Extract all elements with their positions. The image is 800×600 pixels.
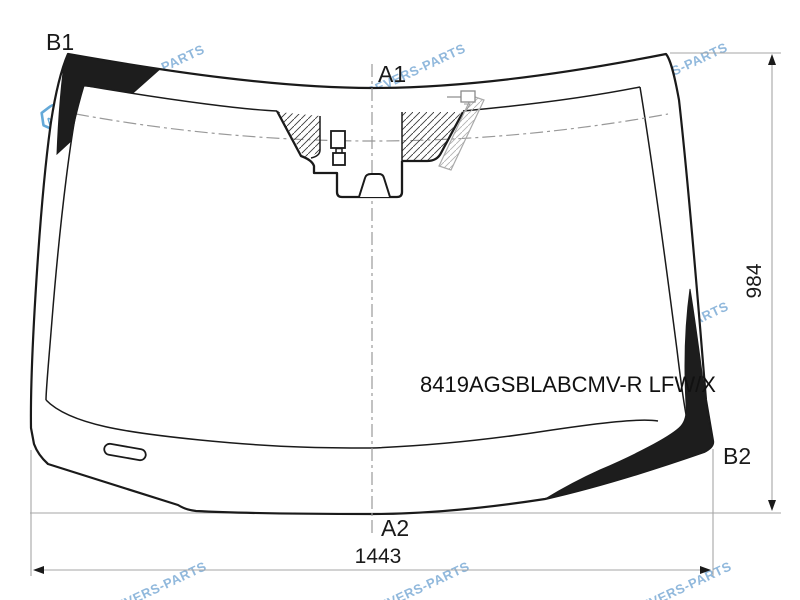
label-b2: B2 bbox=[723, 443, 751, 469]
callout-box bbox=[461, 91, 475, 102]
part-number: 8419AGSBLABCMV-R LFW/X bbox=[420, 372, 716, 397]
arrow-up-icon bbox=[768, 54, 776, 65]
arrow-right-icon bbox=[700, 566, 711, 574]
windshield-diagram: AR AUTOREVERS-PARTS AR AUTOREVERS-PARTS … bbox=[0, 0, 800, 600]
windshield-drawing: 984 1443 bbox=[0, 0, 800, 600]
camera-window bbox=[331, 131, 345, 148]
width-dimension: 1443 bbox=[33, 545, 711, 574]
label-b1: B1 bbox=[46, 29, 74, 55]
height-dimension-value: 984 bbox=[743, 263, 766, 298]
width-dimension-value: 1443 bbox=[355, 545, 402, 568]
arrow-down-icon bbox=[768, 500, 776, 511]
label-a2: A2 bbox=[381, 515, 409, 541]
sensor-window bbox=[333, 153, 345, 165]
label-a1: A1 bbox=[378, 61, 406, 87]
arrow-left-icon bbox=[33, 566, 44, 574]
